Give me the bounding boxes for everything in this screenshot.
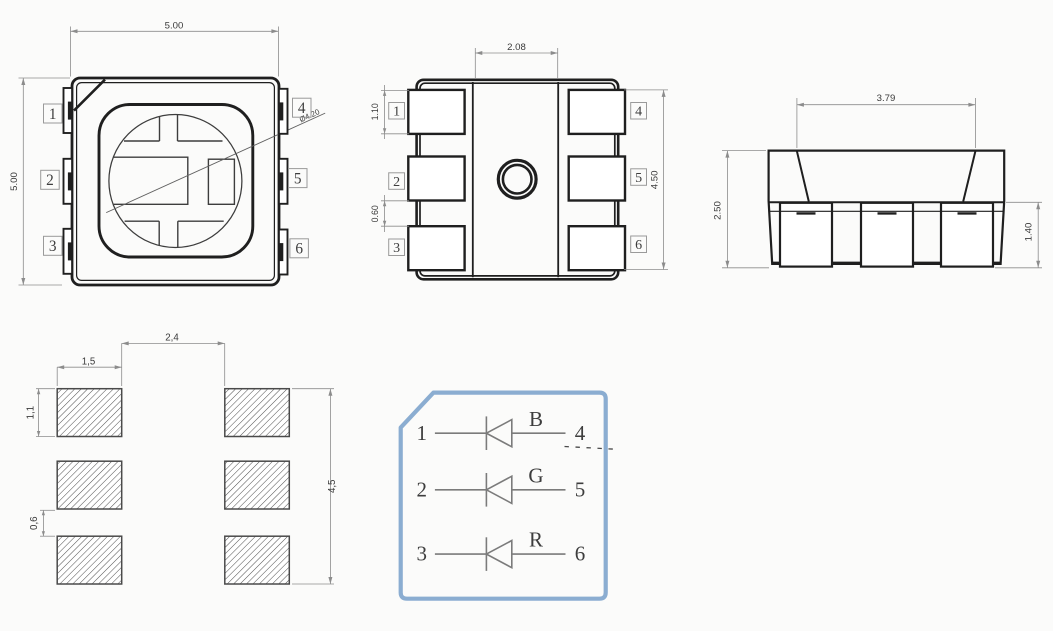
svg-text:2,4: 2,4 xyxy=(165,333,179,344)
svg-text:5: 5 xyxy=(575,477,586,501)
svg-text:4,5: 4,5 xyxy=(327,480,338,493)
svg-text:2.50: 2.50 xyxy=(713,201,724,220)
svg-text:4.50: 4.50 xyxy=(650,171,661,190)
svg-text:1,5: 1,5 xyxy=(82,356,95,367)
svg-text:6: 6 xyxy=(295,241,303,258)
svg-text:3: 3 xyxy=(393,241,400,256)
svg-text:4: 4 xyxy=(575,421,586,445)
svg-text:1,1: 1,1 xyxy=(25,406,36,419)
svg-text:R: R xyxy=(529,528,543,552)
svg-text:3: 3 xyxy=(417,542,428,566)
svg-text:2: 2 xyxy=(417,477,428,501)
svg-text:4: 4 xyxy=(298,100,306,117)
svg-text:3.79: 3.79 xyxy=(877,93,896,104)
svg-text:6: 6 xyxy=(635,238,642,253)
svg-text:6: 6 xyxy=(575,542,586,566)
svg-text:1: 1 xyxy=(417,421,428,445)
svg-text:G: G xyxy=(528,463,543,487)
svg-text:2: 2 xyxy=(46,172,54,189)
svg-text:1: 1 xyxy=(393,105,400,120)
svg-text:5: 5 xyxy=(635,171,642,186)
svg-text:4: 4 xyxy=(635,105,642,120)
svg-text:B: B xyxy=(529,407,543,431)
svg-text:0.60: 0.60 xyxy=(370,205,380,222)
svg-text:5: 5 xyxy=(294,170,302,187)
svg-text:0,6: 0,6 xyxy=(29,516,40,529)
svg-text:1.10: 1.10 xyxy=(370,103,380,120)
svg-text:5.00: 5.00 xyxy=(165,20,184,31)
svg-text:1: 1 xyxy=(49,106,57,123)
svg-text:1.40: 1.40 xyxy=(1024,223,1035,242)
svg-text:5.00: 5.00 xyxy=(9,172,20,191)
svg-text:2.08: 2.08 xyxy=(507,42,526,53)
svg-text:2: 2 xyxy=(393,175,400,190)
svg-text:3: 3 xyxy=(49,238,57,255)
